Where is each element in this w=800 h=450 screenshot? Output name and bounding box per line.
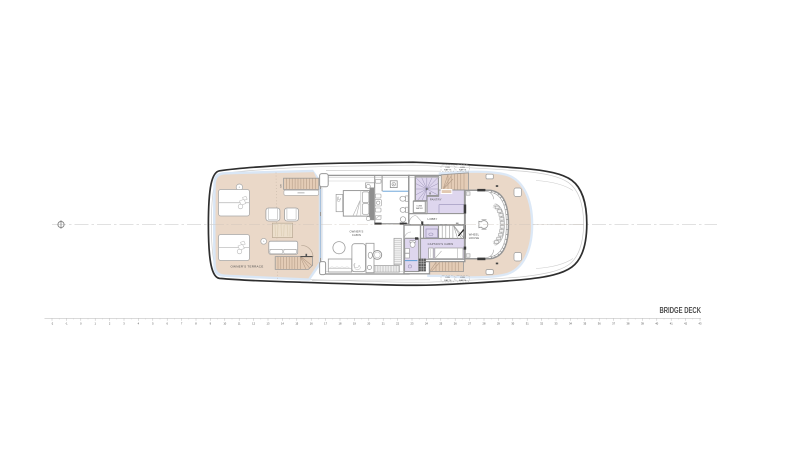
svg-text:LIFE: LIFE — [445, 277, 450, 279]
svg-text:LIFE: LIFE — [460, 277, 465, 279]
svg-text:CAPTAIN'S CABIN: CAPTAIN'S CABIN — [428, 242, 454, 246]
svg-text:RAFTS: RAFTS — [459, 169, 467, 172]
svg-text:LIFE: LIFE — [460, 167, 465, 169]
svg-text:RAFTS: RAFTS — [444, 169, 452, 172]
svg-text:BRIDGE DECK: BRIDGE DECK — [660, 306, 702, 315]
svg-text:CABIN: CABIN — [352, 233, 361, 237]
svg-text:WHEEL: WHEEL — [469, 232, 480, 236]
svg-text:LOBBY: LOBBY — [428, 217, 438, 221]
svg-text:WAITER: WAITER — [416, 207, 424, 210]
svg-text:RAFTS: RAFTS — [444, 279, 452, 282]
svg-text:RAFTS: RAFTS — [459, 279, 467, 282]
svg-text:HOUSE: HOUSE — [469, 236, 480, 240]
svg-text:PANTRY: PANTRY — [430, 198, 442, 202]
svg-text:LIFE: LIFE — [445, 167, 450, 169]
svg-text:OWNER'S: OWNER'S — [349, 229, 363, 233]
svg-text:OWNER'S TERRACE: OWNER'S TERRACE — [231, 265, 264, 269]
